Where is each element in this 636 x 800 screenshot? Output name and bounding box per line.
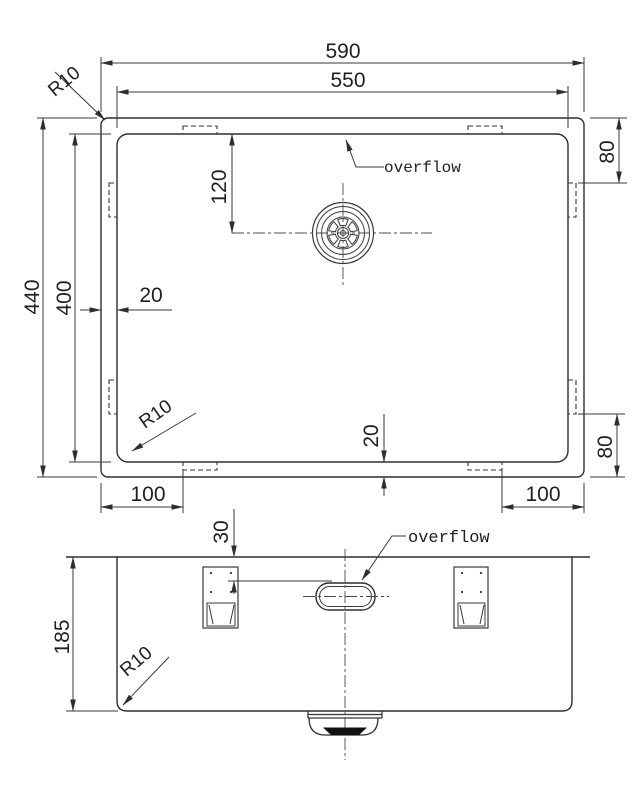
drawing-canvas: 590 550 440 400 120 xyxy=(0,0,636,800)
dim-clip-top-right-label: 80 xyxy=(596,140,619,163)
radius-callout-front: R10 xyxy=(116,643,169,705)
overflow-label-front: overflow xyxy=(408,529,490,548)
dim-outer-width-label: 590 xyxy=(325,40,360,63)
dim-inner-width-label: 550 xyxy=(330,69,365,92)
dim-inner-height: 400 xyxy=(53,134,111,462)
sink-rim-outline xyxy=(101,118,584,477)
overflow-callout-top: overflow xyxy=(346,140,461,177)
dim-depth: 185 xyxy=(51,557,74,711)
dim-inner-height-label: 400 xyxy=(53,280,76,315)
outer-rim-rect xyxy=(101,118,584,477)
overflow-callout-front: overflow xyxy=(362,529,490,580)
dim-rim-bottom-label: 20 xyxy=(360,424,383,447)
drain-centerlines xyxy=(232,183,432,285)
mounting-bracket-left xyxy=(203,567,238,628)
top-view: 590 550 440 400 120 xyxy=(21,40,627,513)
overflow-label-top: overflow xyxy=(384,159,461,177)
dim-overflow-depth: 30 xyxy=(210,509,332,594)
dim-rim-side-label: 20 xyxy=(139,284,162,307)
bowl-body xyxy=(117,557,572,711)
dim-inner-width: 550 xyxy=(117,69,568,128)
radius-callout-top-left: R10 xyxy=(44,63,105,120)
front-view: 185 30 R10 overflow xyxy=(51,509,590,760)
sink-technical-drawing: 590 550 440 400 120 xyxy=(0,0,636,800)
dim-clip-bottom-right-h-label: 100 xyxy=(525,483,560,506)
dim-depth-label: 185 xyxy=(51,619,74,654)
dim-clip-top-right: 80 xyxy=(578,118,627,183)
radius-bottom-left-label: R10 xyxy=(136,396,177,433)
dim-overflow-depth-label: 30 xyxy=(210,520,233,543)
bowl-profile xyxy=(66,557,590,711)
dim-drain-offset: 120 xyxy=(208,134,232,233)
overflow-hole xyxy=(303,583,389,610)
dim-clip-bottom-right: 80 xyxy=(578,414,625,477)
mounting-bracket-right xyxy=(454,567,488,628)
radius-front-label: R10 xyxy=(116,643,156,681)
dim-outer-height-label: 440 xyxy=(21,279,44,314)
dim-clip-bottom-left-label: 100 xyxy=(130,483,165,506)
radius-callout-bottom-left: R10 xyxy=(132,396,196,451)
bowl-opening-rect xyxy=(117,134,568,462)
mounting-clips-hidden xyxy=(109,126,576,470)
dim-clip-bottom-right-label: 80 xyxy=(594,435,617,458)
dim-rim-side: 20 xyxy=(80,284,172,310)
dim-rim-bottom: 20 xyxy=(360,414,384,496)
dim-drain-offset-label: 120 xyxy=(208,169,231,204)
